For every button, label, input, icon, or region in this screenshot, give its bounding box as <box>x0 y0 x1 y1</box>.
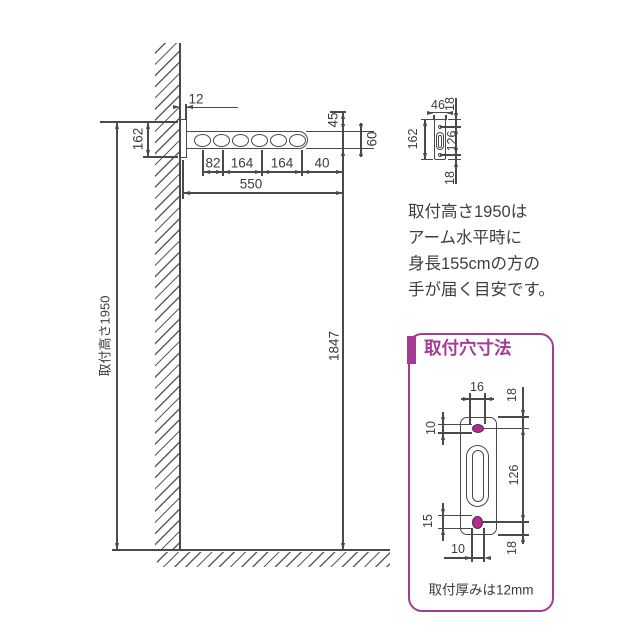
arrowhead <box>359 149 363 156</box>
arrowhead <box>521 410 525 417</box>
arrowhead <box>441 509 445 516</box>
floor-line <box>112 549 390 551</box>
arrowhead <box>521 428 525 435</box>
side-162-label: 162 <box>407 129 420 150</box>
mounting-height-label: 取付高さ1950 <box>99 296 112 377</box>
arrowhead <box>255 170 262 174</box>
ext-line <box>100 121 178 122</box>
side-126-label: 126 <box>446 131 459 152</box>
ext-line <box>440 154 461 155</box>
arrowhead <box>454 160 458 167</box>
thickness-note: 取付厚みは12mm <box>428 583 533 597</box>
title-accent-bar <box>407 336 416 364</box>
arrowhead <box>223 170 230 174</box>
side-slot-inner <box>438 135 442 148</box>
side-18-top-label: 18 <box>444 97 457 111</box>
side-18-bottom-label: 18 <box>444 171 457 185</box>
hole-16-label: 16 <box>470 381 484 394</box>
arrowhead <box>484 556 491 560</box>
hole-126-label: 126 <box>508 465 521 486</box>
arm-hole <box>270 134 287 147</box>
top-mounting-hole <box>472 424 484 433</box>
arrowhead <box>173 105 180 109</box>
arrowhead <box>336 191 343 195</box>
arrowhead <box>359 124 363 131</box>
dim-12-leader <box>186 107 238 108</box>
arrowhead <box>521 515 525 522</box>
note-line-2: アーム水平時に <box>408 230 522 247</box>
arrowhead <box>423 153 427 160</box>
plate-slot-inner <box>472 450 484 502</box>
dim-1847-label: 1847 <box>327 331 341 361</box>
arm-hole <box>289 134 306 147</box>
arrowhead <box>521 535 525 542</box>
arrowhead <box>454 113 458 120</box>
arrowhead <box>441 433 445 440</box>
arrowhead <box>446 111 453 115</box>
arrowhead <box>465 556 472 560</box>
dim-164-label: 164 <box>231 156 254 170</box>
dim-82-label: 82 <box>205 156 220 170</box>
arrowhead <box>423 119 427 126</box>
dim-40-label: 40 <box>314 156 329 170</box>
hole-18-bottom-label: 18 <box>506 541 519 555</box>
note-line-4: 手が届く目安です。 <box>408 282 555 299</box>
arrowhead <box>441 528 445 535</box>
arrowhead <box>262 170 269 174</box>
arrowhead <box>341 124 345 131</box>
arm-hole <box>213 134 230 147</box>
bottom-mounting-hole <box>472 516 483 529</box>
ext-line <box>440 126 461 127</box>
arrowhead <box>183 191 190 195</box>
arm-hole <box>251 134 268 147</box>
arm-hole <box>194 134 211 147</box>
arrowhead <box>341 543 345 550</box>
hole-18-top-label: 18 <box>506 388 519 402</box>
dim-45-label: 45 <box>326 112 340 127</box>
arrowhead <box>146 122 150 129</box>
hole-15-label: 15 <box>422 514 435 528</box>
wall-hatch <box>155 43 180 550</box>
dim-162-label: 162 <box>131 128 145 151</box>
hole-10-top-label: 10 <box>425 421 438 435</box>
arrowhead <box>441 417 445 424</box>
note-line-1: 取付高さ1950は <box>408 204 527 221</box>
arm-hole <box>232 134 249 147</box>
arrowhead <box>336 170 343 174</box>
dim-550-line <box>183 192 343 193</box>
dim-12-label: 12 <box>188 92 203 106</box>
arrowhead <box>115 543 119 550</box>
floor-hatch <box>157 552 390 567</box>
diagram-canvas: 12 162 45 60 82 164 164 40 550 1847 取付高さ… <box>0 0 640 640</box>
dim-550-label: 550 <box>240 177 263 191</box>
hole-10-bottom-label: 10 <box>451 543 465 556</box>
arrowhead <box>295 170 302 174</box>
arrowhead <box>463 397 470 401</box>
arrowhead <box>302 170 309 174</box>
dim-1950-line <box>116 122 117 550</box>
ext-line <box>433 115 434 120</box>
ext-line <box>445 115 446 120</box>
dim-60-label: 60 <box>365 131 379 146</box>
arrowhead <box>341 112 345 119</box>
arrowhead <box>485 397 492 401</box>
hole-box-title: 取付穴寸法 <box>424 340 512 358</box>
dim-1847-line <box>342 112 343 550</box>
arrowhead <box>115 122 119 129</box>
dim-164-label: 164 <box>271 156 294 170</box>
note-line-3: 身長155cmの方の <box>408 256 540 273</box>
arrowhead <box>341 149 345 156</box>
dim-10-bottom-line <box>444 557 484 558</box>
arrowhead <box>146 150 150 157</box>
